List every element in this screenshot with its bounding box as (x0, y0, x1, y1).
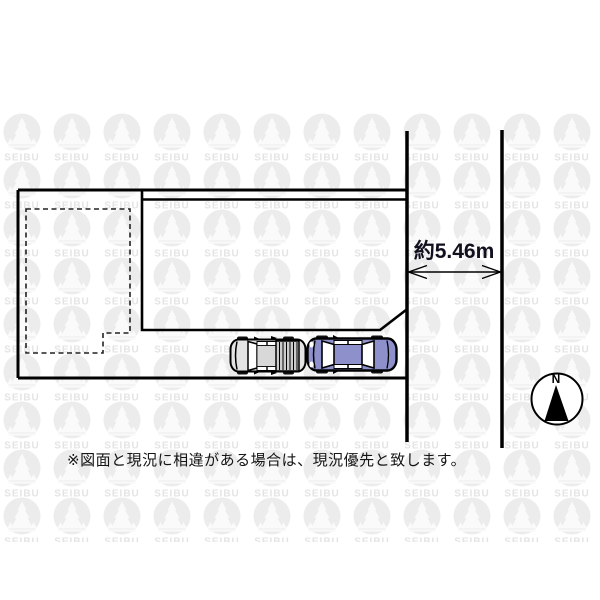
compass-north-label: N (552, 372, 561, 386)
car-gray-roof (257, 346, 276, 367)
dimension-arrow (408, 266, 501, 279)
car-gray (231, 336, 306, 375)
road-width-dimension-label: 約5.46m (404, 235, 504, 265)
building-footprint-dashed (26, 209, 130, 353)
north-compass: N (532, 372, 583, 425)
car-blue-windshield (322, 341, 334, 368)
car-blue (308, 335, 397, 374)
site-plan-drawing: N (0, 0, 600, 600)
site-plan-canvas: SEIBUSEIBUSEIBUSEIBUSEIBUSEIBUSEIBUSEIBU… (0, 0, 600, 600)
car-blue-rear-window (362, 341, 374, 368)
disclaimer-note: ※図面と現況に相違がある場合は、現況優先と致します。 (67, 449, 466, 470)
inner-boundary (142, 191, 406, 330)
car-gray-windshield (248, 342, 257, 371)
